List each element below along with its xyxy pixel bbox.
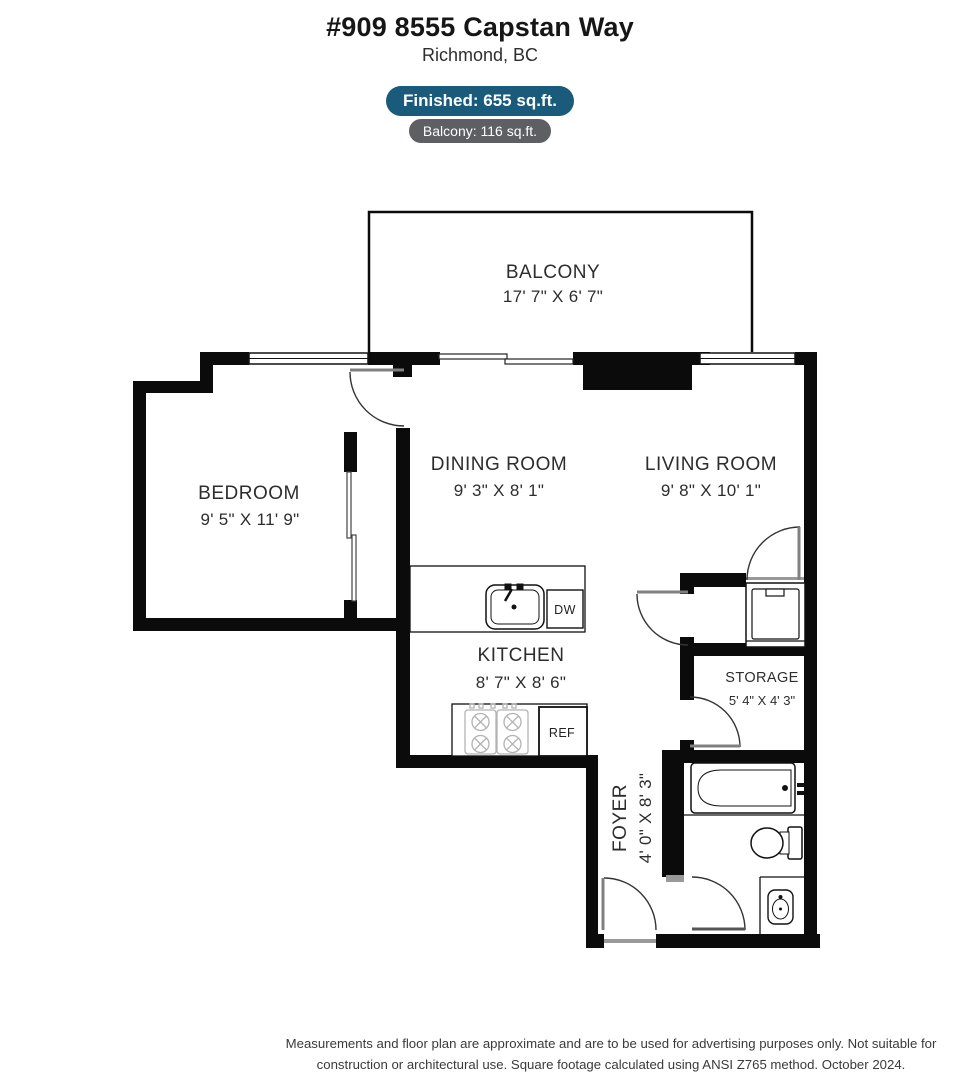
dining-label: DINING ROOM <box>431 454 567 475</box>
dining-dims: 9' 3" X 8' 1" <box>454 481 545 500</box>
living-label: LIVING ROOM <box>645 454 777 475</box>
bedroom-window <box>249 353 368 364</box>
living-room-window <box>700 353 795 364</box>
disclaimer-line-2: construction or architectural use. Squar… <box>261 1054 960 1075</box>
bathtub <box>684 763 804 815</box>
floorplan-page: #909 8555 Capstan Way Richmond, BC Finis… <box>0 0 960 1089</box>
balcony-dims: 17' 7" X 6' 7" <box>503 287 603 306</box>
washer-dryer <box>746 583 805 647</box>
dishwasher: DW <box>547 590 583 628</box>
floor-plan: DW REF <box>0 0 960 1089</box>
kitchen-sink <box>486 584 544 629</box>
bathroom-vanity <box>760 877 804 934</box>
closet-sliding-door <box>347 472 356 601</box>
kitchen-label: KITCHEN <box>478 645 565 666</box>
disclaimer: Measurements and floor plan are approxim… <box>261 1033 960 1075</box>
foyer-label: FOYER <box>610 784 631 852</box>
bedroom-door <box>350 370 404 426</box>
storage-label: STORAGE <box>725 670 798 686</box>
refrigerator: REF <box>539 707 587 756</box>
refrigerator-label: REF <box>549 726 575 740</box>
living-dims: 9' 8" X 10' 1" <box>661 481 761 500</box>
entry-door <box>603 878 656 930</box>
dishwasher-label: DW <box>554 603 576 617</box>
bedroom-dims: 9' 5" X 11' 9" <box>200 510 299 529</box>
storage-dims: 5' 4" X 4' 3" <box>729 693 796 708</box>
foyer-dims: 4' 0" X 8' 3" <box>636 773 655 864</box>
balcony-label: BALCONY <box>506 262 600 283</box>
bedroom-label: BEDROOM <box>198 483 300 504</box>
disclaimer-line-1: Measurements and floor plan are approxim… <box>261 1033 960 1054</box>
balcony-sliding-door <box>439 354 573 364</box>
laundry-closet-door <box>747 527 800 580</box>
kitchen-dims: 8' 7" X 8' 6" <box>476 673 567 692</box>
toilet <box>751 827 802 859</box>
walls <box>133 352 820 948</box>
bathroom-door <box>692 877 745 930</box>
